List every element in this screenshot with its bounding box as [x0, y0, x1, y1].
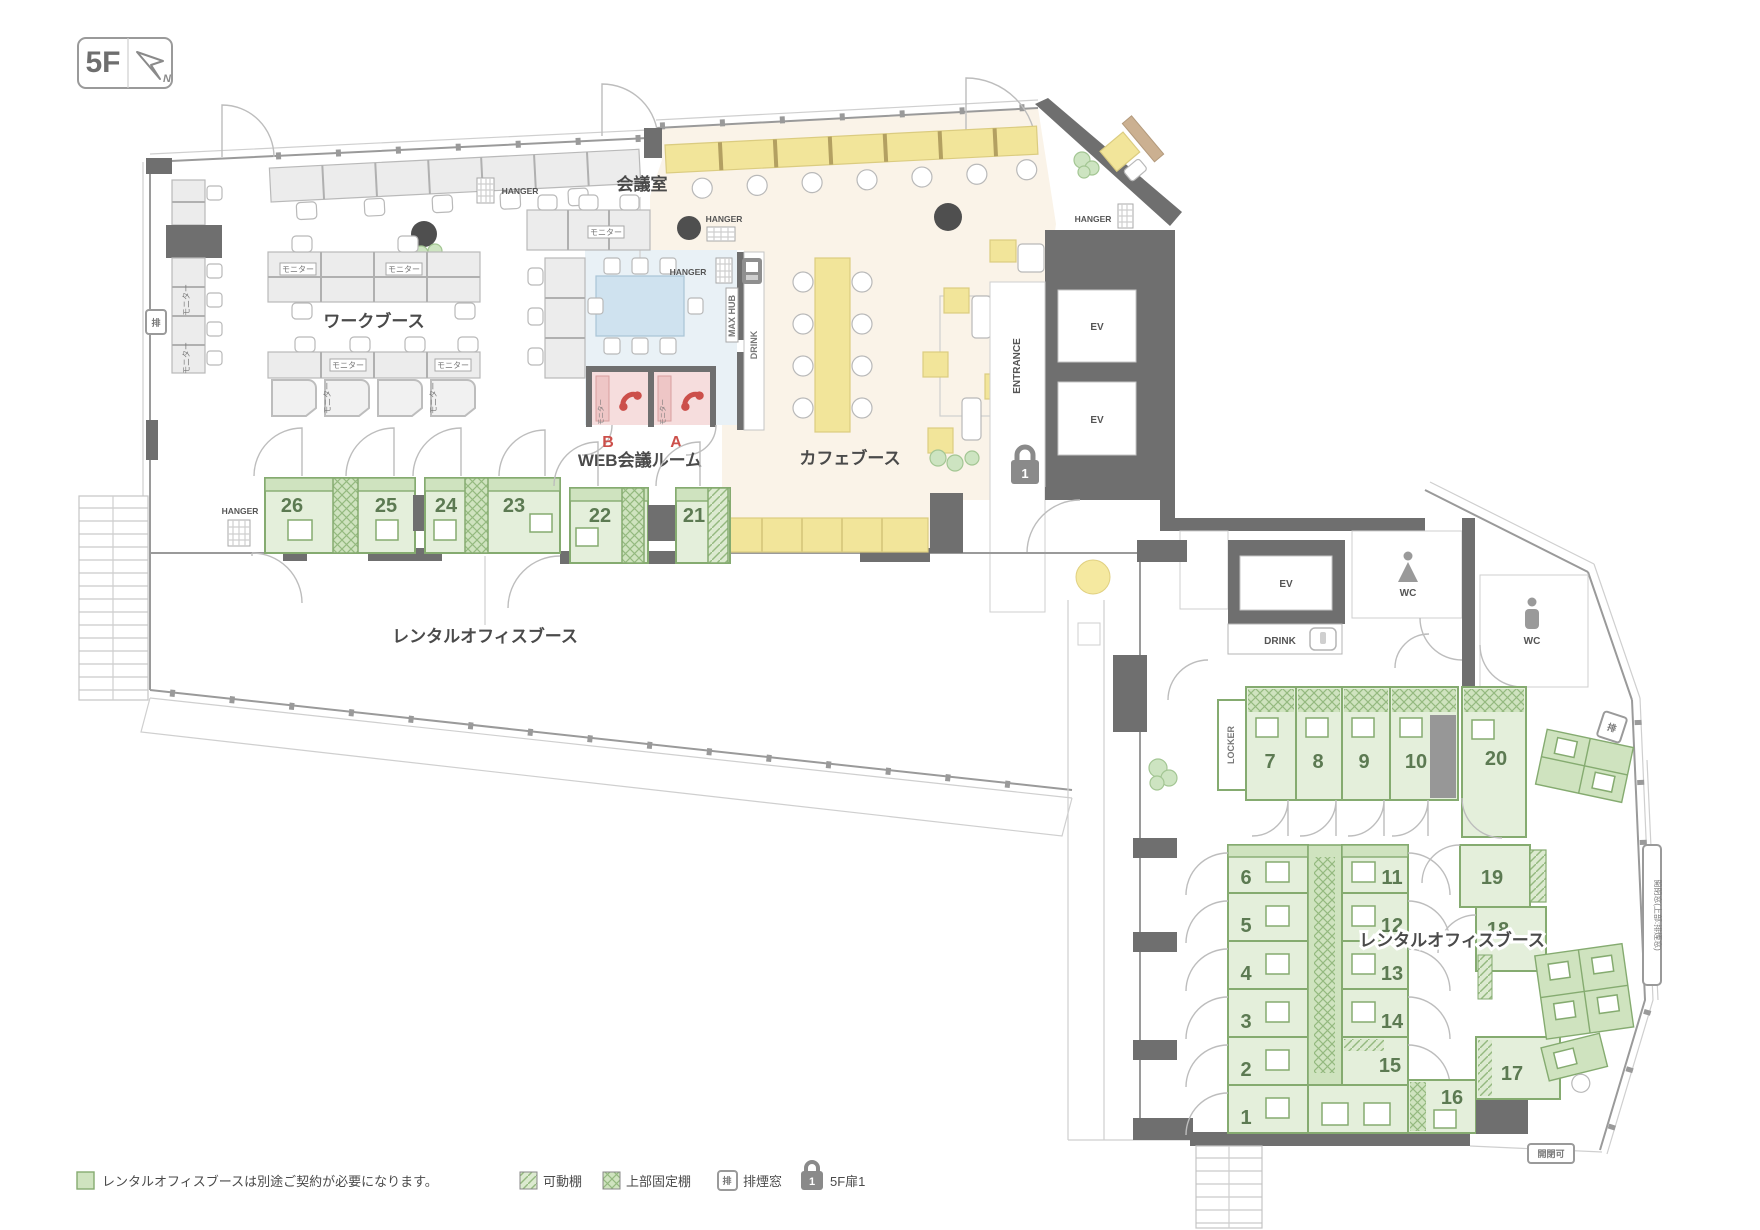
monitor-label: モニター — [658, 399, 667, 425]
smoke-window-box-right: 排 — [1597, 711, 1628, 743]
legend-smoke-glyph: 排 — [722, 1175, 731, 1186]
wall-chip — [644, 128, 662, 158]
drink-label-vertical: DRINK — [749, 330, 759, 359]
booth-26-door — [254, 428, 302, 476]
booth-row-7-10: 7 8 9 10 — [1246, 687, 1458, 836]
work-booth-title: ワークブース — [323, 311, 424, 331]
booth-number-2: 2 — [1240, 1059, 1251, 1081]
booth-number-15: 15 — [1379, 1055, 1401, 1077]
hanger-ev-corner: HANGER — [1075, 204, 1133, 228]
booth-number-24: 24 — [435, 495, 458, 517]
booth-number-19: 19 — [1481, 867, 1503, 889]
monitor-label: モニター — [388, 265, 420, 274]
booth-3-door — [1186, 997, 1228, 1039]
smoke-label-left: 排 — [151, 317, 160, 328]
hanger-label: HANGER — [502, 186, 539, 196]
drink-counter: DRINK — [1228, 624, 1342, 654]
legend: レンタルオフィスブースは別途ご契約が必要になります。 可動棚 上部固定棚 排 排… — [77, 1162, 865, 1190]
booth-number-13: 13 — [1381, 963, 1403, 985]
desk-cluster-se — [1535, 944, 1634, 1039]
floor-plan-canvas: 排 HANGER モニター モニター ワークブース — [0, 0, 1760, 1230]
monitor-label: モニター — [282, 265, 314, 274]
booth-bottom-room — [1308, 1085, 1408, 1133]
plant-cafe — [934, 203, 962, 231]
window-wall-bottom-2 — [150, 698, 1072, 798]
legend-movable-label: 可動棚 — [543, 1174, 582, 1189]
legend-note: レンタルオフィスブースは別途ご契約が必要になります。 — [102, 1174, 438, 1189]
meeting-room-title: 会議室 — [617, 174, 668, 194]
booth-number-5: 5 — [1240, 915, 1251, 937]
booth-20: 20 — [1462, 687, 1526, 838]
wc-room-female: WC — [1352, 518, 1475, 700]
plant-meeting — [677, 216, 701, 240]
booth-number-22: 22 — [589, 505, 611, 527]
window-wall-bottom — [150, 690, 1072, 790]
hanger-label: HANGER — [706, 214, 743, 224]
privacy-pod — [272, 380, 316, 416]
floor-badge-label: 5F — [85, 46, 120, 79]
door-lock-number: 1 — [1021, 466, 1028, 481]
printer-icon — [742, 258, 762, 284]
drink-label: DRINK — [1264, 636, 1296, 647]
privacy-pod — [378, 380, 422, 416]
ev-label: EV — [1090, 322, 1104, 333]
stairs-bottom — [1196, 1146, 1262, 1228]
booth-number-1: 1 — [1240, 1107, 1251, 1129]
legend-smoke-label: 排煙窓 — [743, 1174, 782, 1189]
floor-plan-5f: 排 HANGER モニター モニター ワークブース — [0, 0, 1760, 1230]
booth-16: 16 — [1408, 1080, 1476, 1133]
booth-number-4: 4 — [1240, 963, 1252, 985]
hanger-label: HANGER — [670, 267, 707, 277]
booth-19: 19 — [1422, 845, 1546, 907]
booth-number-7: 7 — [1264, 751, 1275, 773]
wall-facilities-top — [1175, 518, 1425, 531]
booth-number-6: 6 — [1240, 867, 1251, 889]
entrance-label: ENTRANCE — [1012, 338, 1023, 394]
booth-19-door — [1422, 845, 1460, 883]
smoke-window-box-left: 排 — [146, 310, 166, 334]
wall-bottom — [1190, 1132, 1470, 1146]
legend-lock-number: 1 — [809, 1176, 815, 1188]
monitor-label: モニター — [332, 361, 364, 370]
booth-4-door — [1186, 949, 1228, 991]
cafe-bottom-bench — [722, 518, 928, 552]
booth-18: 18 — [1438, 907, 1634, 1039]
rental-office-title-lower: レンタルオフィスブース — [1359, 930, 1545, 950]
wc-room-male: WC — [1480, 575, 1588, 687]
stool-yellow — [1076, 560, 1110, 594]
booth-17: 17 — [1476, 1033, 1612, 1099]
monitor-label: モニター — [182, 284, 191, 316]
monitor-label: モニター — [182, 342, 191, 374]
meeting-side-desks — [528, 258, 585, 378]
booth-number-16: 16 — [1441, 1087, 1463, 1109]
booth-23-door — [499, 430, 545, 476]
desk-row-middle: モニター モニター — [268, 236, 480, 319]
web-booth-b-label: B — [602, 434, 614, 451]
booth-14-door — [1408, 997, 1450, 1039]
monitor-label: モニター — [590, 228, 622, 237]
entrance-corridor — [990, 282, 1045, 612]
plant-lower — [1149, 759, 1177, 790]
legend-fixed-swatch — [603, 1172, 620, 1189]
openable-label-box: 開閉可 — [1528, 1144, 1574, 1163]
booth-number-20: 20 — [1485, 748, 1507, 770]
open-window-label: 開閉窓(上部:排煙窓) — [1653, 879, 1663, 951]
booth-number-21: 21 — [683, 505, 705, 527]
compass-n-label: N — [163, 73, 172, 85]
ev-label: EV — [1090, 415, 1104, 426]
booth-column-center: 11 12 13 14 15 — [1342, 845, 1450, 1087]
legend-lock-icon: 1 — [801, 1162, 823, 1190]
meeting-desk-band: モニター — [527, 195, 650, 250]
male-icon — [1525, 609, 1539, 629]
wc-label: WC — [1524, 636, 1541, 647]
booth-9-door — [1348, 800, 1384, 836]
booth-number-23: 23 — [503, 495, 525, 517]
open-window-label-box: 開閉窓(上部:排煙窓) — [1643, 845, 1663, 985]
wall-chip — [648, 551, 678, 564]
wc-label: WC — [1400, 588, 1417, 599]
door-corridor-2 — [508, 556, 560, 608]
hanger-label: HANGER — [222, 506, 259, 516]
booth-number-8: 8 — [1312, 751, 1323, 773]
left-booth-column: モニター モニター — [166, 180, 222, 374]
booth-10-gray — [1430, 715, 1456, 798]
max-hub-label: MAX HUB — [727, 295, 737, 337]
shelf-strip-hatch — [1314, 857, 1335, 1073]
wall-neck-top — [1045, 487, 1175, 500]
ev-label: EV — [1279, 579, 1293, 590]
rental-booths-lower: LOCKER 7 8 9 10 20 — [1186, 687, 1634, 1135]
booth-number-17: 17 — [1501, 1063, 1523, 1085]
wall-chip — [146, 420, 158, 460]
wall-chip — [648, 505, 676, 541]
hanger-bottom-left: HANGER — [222, 506, 259, 546]
booth-2-door — [1186, 1045, 1228, 1087]
booth-11-door — [1408, 853, 1450, 895]
cafe-title: カフェブース — [799, 448, 900, 468]
wc-female-door — [1420, 618, 1462, 660]
booth-7-door — [1252, 800, 1288, 836]
booth-13-door — [1408, 949, 1450, 991]
booth-number-26: 26 — [281, 495, 303, 517]
monitor-label: モニター — [596, 399, 605, 425]
booth-number-9: 9 — [1358, 751, 1369, 773]
stairs-upper-left — [79, 496, 148, 700]
hanger-label: HANGER — [1075, 214, 1112, 224]
balcony-outline — [141, 698, 1072, 836]
booth-10-door — [1392, 800, 1428, 836]
window-tick — [1078, 623, 1100, 645]
booth-6-door — [1186, 853, 1228, 895]
booth-8-door — [1300, 800, 1336, 836]
desk-row-lower: モニター モニター モニター モニター — [268, 337, 480, 416]
monitor-label: モニター — [429, 382, 438, 414]
booth-25-door — [346, 428, 394, 476]
wall-chip — [930, 493, 963, 553]
wall-chip — [146, 158, 172, 174]
utility-room — [1180, 531, 1228, 609]
legend-green-swatch — [77, 1172, 94, 1189]
legend-fixed-label: 上部固定棚 — [626, 1174, 691, 1189]
booth-24-door — [413, 428, 461, 476]
booth-5-door — [1186, 901, 1228, 943]
wall-chip — [1476, 1100, 1528, 1134]
rental-office-title-upper: レンタルオフィスブース — [392, 626, 578, 646]
legend-door-label: 5F扉1 — [830, 1174, 865, 1189]
cafe-corner-set — [1096, 116, 1165, 185]
booth-number-10: 10 — [1405, 751, 1427, 773]
sink-icon — [1310, 628, 1336, 650]
web-meeting-title: WEB会議ルーム — [578, 450, 702, 470]
locker-label: LOCKER — [1226, 726, 1236, 765]
legend-movable-swatch — [520, 1172, 537, 1189]
booth-number-14: 14 — [1381, 1011, 1404, 1033]
floor-badge: 5F N — [78, 38, 172, 88]
monitor-label: モニター — [323, 382, 332, 414]
openable-label: 開閉可 — [1537, 1149, 1564, 1159]
booth-number-3: 3 — [1240, 1011, 1251, 1033]
booth-number-25: 25 — [375, 495, 397, 517]
monitor-label: モニター — [437, 361, 469, 370]
ev-block-walls — [1045, 230, 1175, 500]
booth-number-11: 11 — [1381, 867, 1402, 889]
